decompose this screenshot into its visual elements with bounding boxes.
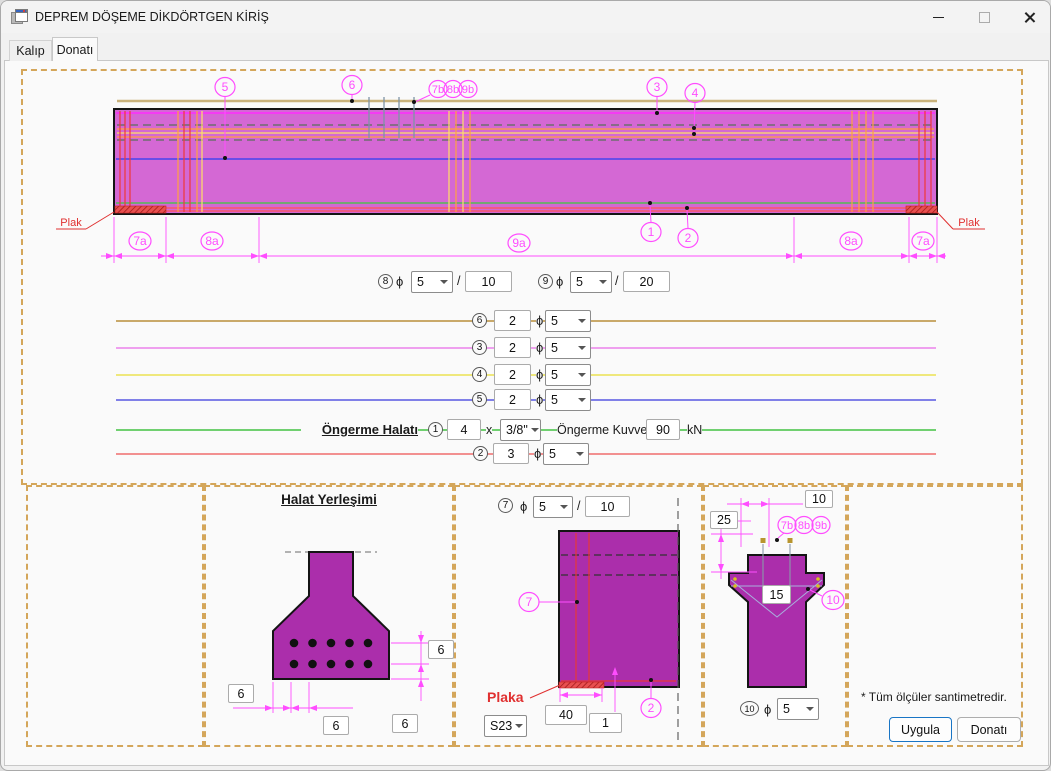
- tendon-count-input[interactable]: [447, 419, 481, 440]
- slash-label: /: [457, 273, 460, 289]
- ongerme-halati-label: Öngerme Halatı: [301, 422, 418, 438]
- callout-1-badge: 1: [428, 422, 443, 437]
- callout-9-badge: 9: [538, 274, 553, 289]
- phi-symbol: ϕ: [536, 340, 543, 356]
- chevron-down-icon: [578, 346, 586, 350]
- dia-select-3[interactable]: 5: [545, 337, 591, 359]
- section-dim-side-input[interactable]: [710, 511, 738, 529]
- panel-footer: [847, 485, 1023, 747]
- close-button[interactable]: [1006, 1, 1051, 33]
- halat-dim-bottom-input[interactable]: [323, 716, 349, 735]
- minimize-icon: [933, 17, 944, 18]
- halat-yerlesimi-title: Halat Yerleşimi: [204, 492, 454, 508]
- callout-8-badge: 8: [378, 274, 393, 289]
- plate-steel-select[interactable]: S23: [484, 715, 527, 737]
- minimize-button[interactable]: [915, 1, 961, 33]
- app-window: DEPREM DÖŞEME DİKDÖRTGEN KİRİŞ Kalıp Don…: [0, 0, 1051, 771]
- dia-select-10[interactable]: 5: [777, 698, 819, 720]
- chevron-down-icon: [576, 452, 584, 456]
- dia-select-5[interactable]: 5: [545, 389, 591, 411]
- phi-symbol: ϕ: [556, 274, 563, 290]
- phi-symbol: ϕ: [536, 367, 543, 383]
- dia-select-6[interactable]: 5: [545, 310, 591, 332]
- callout-5-badge: 5: [472, 392, 487, 407]
- count-input-5[interactable]: [494, 389, 531, 410]
- callout-3-badge: 3: [472, 340, 487, 355]
- spacing-input-8[interactable]: [465, 271, 512, 292]
- kn-unit-label: kN: [687, 422, 702, 438]
- times-label: x: [486, 422, 492, 438]
- dia-select-4[interactable]: 5: [545, 364, 591, 386]
- phi-symbol: ϕ: [396, 274, 403, 290]
- maximize-icon: [979, 12, 990, 23]
- chevron-down-icon: [578, 319, 586, 323]
- slash-label: /: [615, 273, 618, 289]
- phi-symbol: ϕ: [536, 392, 543, 408]
- chevron-down-icon: [578, 373, 586, 377]
- maximize-button[interactable]: [961, 1, 1007, 33]
- tab-kalip[interactable]: Kalıp: [9, 40, 52, 61]
- close-icon: [1023, 11, 1036, 24]
- halat-dim-right-top-input[interactable]: [428, 640, 454, 659]
- app-icon: [11, 9, 27, 24]
- slash-label: /: [577, 498, 580, 514]
- count-input-3[interactable]: [494, 337, 531, 358]
- chevron-down-icon: [515, 724, 523, 728]
- section-dim-top-input[interactable]: [805, 490, 833, 508]
- chevron-down-icon: [440, 280, 448, 284]
- dia-select-9[interactable]: 5: [570, 271, 612, 293]
- callout-4-badge: 4: [472, 367, 487, 382]
- spacing-input-7[interactable]: [585, 496, 630, 517]
- halat-dim-right-bottom-input[interactable]: [392, 714, 418, 733]
- phi-symbol: ϕ: [764, 702, 771, 718]
- chevron-down-icon: [578, 398, 586, 402]
- units-note: * Tüm ölçüler santimetredir.: [861, 689, 1007, 705]
- donati-button[interactable]: Donatı: [957, 717, 1021, 742]
- count-input-4[interactable]: [494, 364, 531, 385]
- section-dim-width-input[interactable]: [762, 585, 791, 604]
- chevron-down-icon: [599, 280, 607, 284]
- tendon-force-input[interactable]: [646, 419, 680, 440]
- callout-7-badge: 7: [498, 498, 513, 513]
- chevron-down-icon: [531, 428, 539, 432]
- plate-thickness-input[interactable]: [589, 713, 622, 733]
- panel-halat-yerlesimi: [204, 485, 454, 747]
- dia-select-2[interactable]: 5: [543, 443, 589, 465]
- callout-2-badge: 2: [473, 446, 488, 461]
- plaka-label: Plaka: [487, 689, 524, 705]
- title-bar: DEPREM DÖŞEME DİKDÖRTGEN KİRİŞ: [1, 1, 1050, 33]
- ongerme-kuvveti-label: Öngerme Kuvveti :: [557, 422, 661, 438]
- callout-6-badge: 6: [472, 313, 487, 328]
- window-title: DEPREM DÖŞEME DİKDÖRTGEN KİRİŞ: [35, 10, 269, 24]
- phi-symbol: ϕ: [534, 446, 541, 462]
- callout-10-badge: 10: [740, 701, 759, 716]
- count-input-2[interactable]: [493, 443, 529, 464]
- phi-symbol: ϕ: [536, 313, 543, 329]
- dia-select-8[interactable]: 5: [411, 271, 453, 293]
- tendon-size-select[interactable]: 3/8": [500, 419, 541, 441]
- chevron-down-icon: [560, 505, 568, 509]
- tab-donati[interactable]: Donatı: [52, 37, 98, 61]
- count-input-6[interactable]: [494, 310, 531, 331]
- dia-select-7[interactable]: 5: [533, 496, 573, 518]
- chevron-down-icon: [806, 707, 814, 711]
- halat-dim-left-input[interactable]: [228, 684, 254, 703]
- uygula-button[interactable]: Uygula: [889, 717, 952, 742]
- phi-symbol: ϕ: [520, 499, 527, 515]
- spacing-input-9[interactable]: [623, 271, 670, 292]
- plate-width-input[interactable]: [545, 705, 587, 725]
- panel-empty: [26, 485, 204, 747]
